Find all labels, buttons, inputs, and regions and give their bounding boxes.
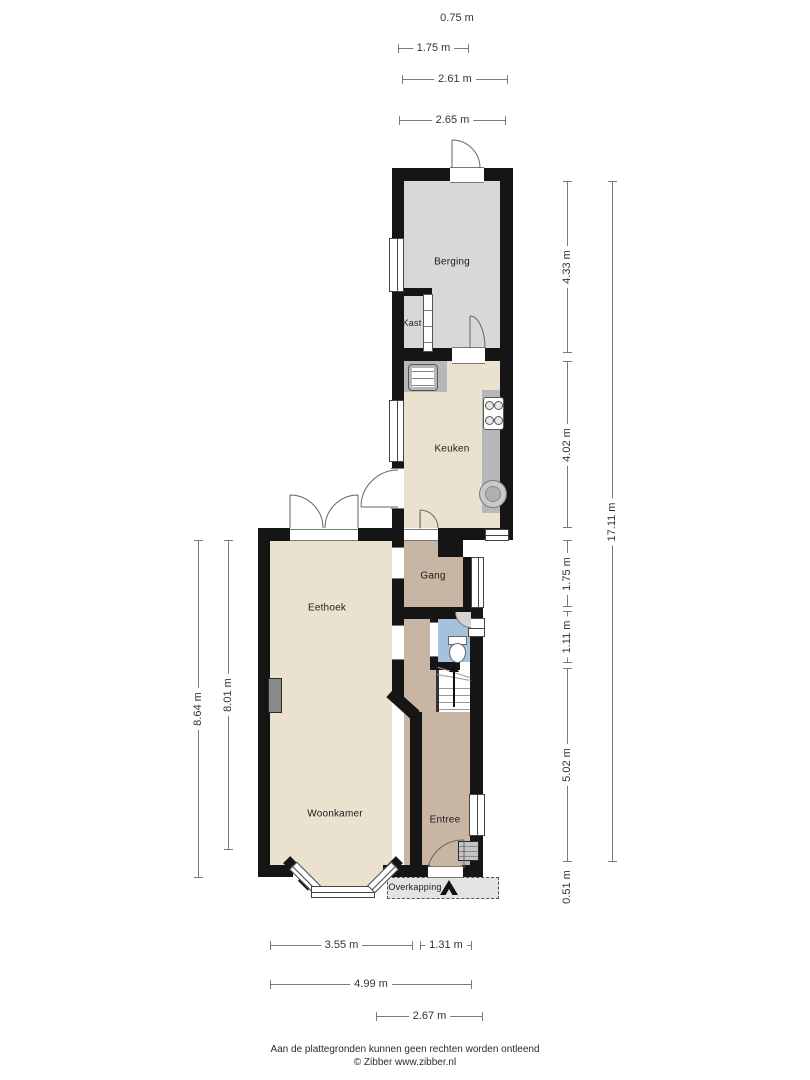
dimension-top-0: 0.75 m: [430, 8, 484, 28]
dimension-bottom-267: 2.67 m: [376, 1006, 483, 1026]
dimension-left-801: 8.01 m: [218, 540, 238, 850]
disclaimer-text: Aan de plattegronden kunnen geen rechten…: [0, 1044, 810, 1055]
room-label-eethoek: Eethoek: [308, 603, 346, 614]
dimension-left-864: 8.64 m: [188, 540, 208, 878]
dimension-right-111: 1.11 m: [557, 611, 577, 663]
door-swing-arcs: [0, 0, 810, 1080]
dimension-top-3: 2.65 m: [399, 110, 506, 130]
dimension-right-051: 0.51 m: [557, 877, 577, 897]
north-arrow-icon: [440, 880, 458, 895]
dimension-bottom-131: 1.31 m: [420, 935, 472, 955]
room-label-entree: Entree: [430, 815, 461, 826]
dimension-right-502: 5.02 m: [557, 668, 577, 862]
credit-text: © Zibber www.zibber.nl: [0, 1057, 810, 1068]
room-label-woonkamer: Woonkamer: [307, 809, 363, 820]
room-label-gang: Gang: [420, 571, 445, 582]
dimension-right-402: 4.02 m: [557, 361, 577, 528]
dimension-right-433: 4.33 m: [557, 181, 577, 353]
dimension-right-175: 1.75 m: [557, 540, 577, 607]
room-label-kast: Kast: [403, 318, 422, 328]
dimension-top-2: 2.61 m: [402, 69, 508, 89]
floorplan-page: Berging Kast Keuken Gang Eethoek Woonkam…: [0, 0, 810, 1080]
dimension-bottom-355: 3.55 m: [270, 935, 413, 955]
dimension-right-total: 17.11 m: [602, 181, 622, 862]
dimension-top-1: 1.75 m: [398, 38, 469, 58]
room-label-berging: Berging: [434, 257, 470, 268]
dimension-bottom-499: 4.99 m: [270, 974, 472, 994]
room-label-overkapping: Overkapping: [388, 882, 441, 892]
room-label-keuken: Keuken: [434, 444, 469, 455]
